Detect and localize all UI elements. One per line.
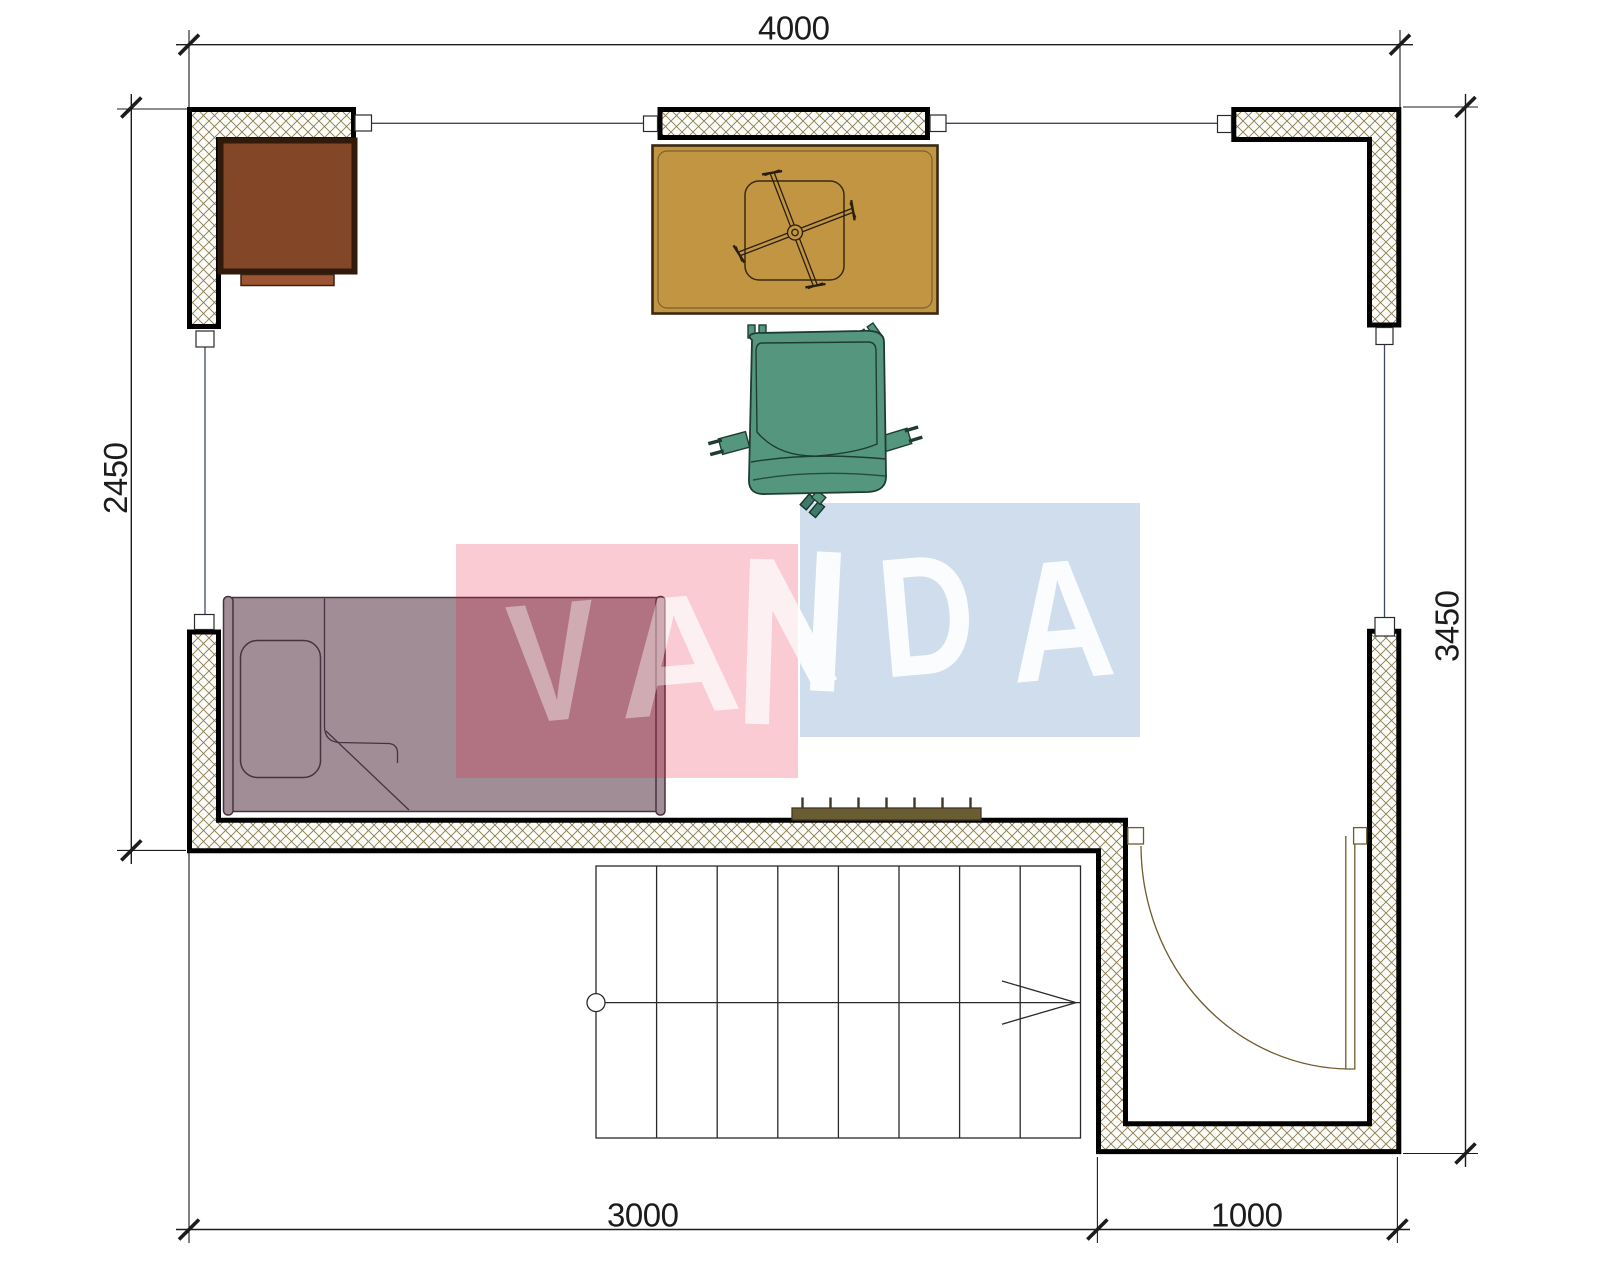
svg-text:2450: 2450 (97, 442, 134, 514)
svg-text:3000: 3000 (607, 1197, 679, 1234)
svg-text:3450: 3450 (1429, 590, 1466, 662)
svg-text:4000: 4000 (758, 10, 830, 47)
svg-text:1000: 1000 (1211, 1197, 1283, 1234)
